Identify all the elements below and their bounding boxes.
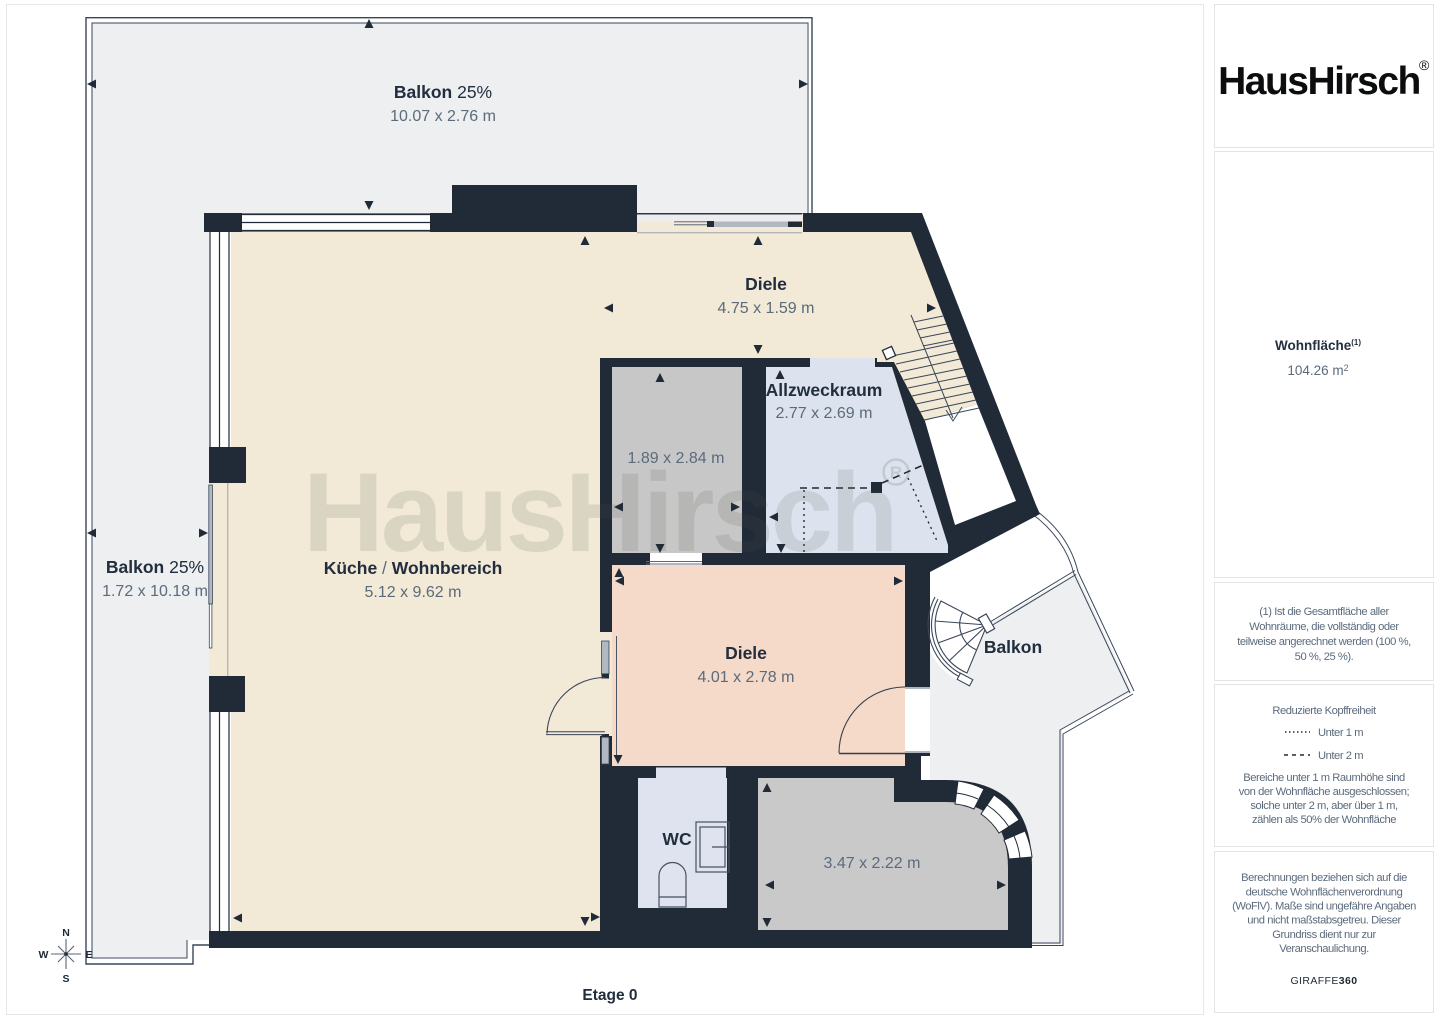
svg-text:WC: WC: [662, 829, 692, 849]
svg-text:E: E: [85, 949, 92, 961]
svg-text:Veranschaulichung.: Veranschaulichung.: [1279, 943, 1369, 955]
svg-text:deutsche Wohnflächenverordnung: deutsche Wohnflächenverordnung: [1246, 887, 1403, 899]
svg-text:von der Wohnfläche ausgeschlos: von der Wohnfläche ausgeschlossen;: [1239, 786, 1410, 798]
svg-text:Unter 1 m: Unter 1 m: [1318, 727, 1363, 739]
svg-text:Balkon 25%: Balkon 25%: [394, 82, 492, 102]
svg-text:Balkon: Balkon: [984, 637, 1042, 657]
svg-text:und nicht maßstabsgetreu. Dies: und nicht maßstabsgetreu. Dieser: [1247, 915, 1401, 927]
svg-text:S: S: [62, 973, 69, 985]
svg-text:Allzweckraum: Allzweckraum: [766, 380, 883, 400]
svg-text:zählen als 50% der Wohnfläche: zählen als 50% der Wohnfläche: [1252, 814, 1396, 826]
svg-text:N: N: [62, 927, 70, 939]
svg-text:R: R: [890, 463, 902, 482]
svg-text:solche unter 2 m, aber über 1: solche unter 2 m, aber über 1 m,: [1250, 800, 1398, 812]
svg-text:1.89 x 2.84 m: 1.89 x 2.84 m: [628, 450, 725, 467]
svg-text:Etage 0: Etage 0: [582, 987, 637, 1004]
svg-text:104.26 m2: 104.26 m2: [1287, 363, 1348, 378]
svg-text:Balkon 25%: Balkon 25%: [106, 557, 204, 577]
svg-text:Reduzierte Kopffreiheit: Reduzierte Kopffreiheit: [1272, 705, 1377, 717]
svg-text:Wohnräume, die vollständig ode: Wohnräume, die vollständig oder: [1249, 621, 1399, 633]
svg-text:Küche / Wohnbereich: Küche / Wohnbereich: [324, 558, 503, 578]
svg-text:2.77 x 2.69 m: 2.77 x 2.69 m: [776, 405, 873, 422]
svg-text:teilweise angerechnet werden (: teilweise angerechnet werden (100 %,: [1237, 636, 1411, 648]
svg-text:W: W: [39, 949, 49, 961]
svg-text:Berechnungen beziehen sich auf: Berechnungen beziehen sich auf die: [1241, 872, 1407, 884]
svg-text:4.01 x 2.78 m: 4.01 x 2.78 m: [698, 669, 795, 686]
svg-text:HausHirsch: HausHirsch: [303, 450, 895, 575]
svg-text:Grundriss dient nur zur: Grundriss dient nur zur: [1272, 929, 1376, 941]
svg-text:Unter 2 m: Unter 2 m: [1318, 750, 1363, 762]
svg-text:Diele: Diele: [725, 643, 767, 663]
svg-text:1.72 x 10.18 m: 1.72 x 10.18 m: [102, 583, 208, 600]
svg-text:®: ®: [1419, 57, 1430, 73]
svg-text:10.07 x 2.76 m: 10.07 x 2.76 m: [390, 108, 496, 125]
svg-text:5.12 x 9.62 m: 5.12 x 9.62 m: [365, 584, 462, 601]
svg-text:Wohnfläche(1): Wohnfläche(1): [1275, 338, 1361, 353]
svg-text:3.47 x 2.22 m: 3.47 x 2.22 m: [824, 855, 921, 872]
svg-text:(1) Ist die Gesamtfläche aller: (1) Ist die Gesamtfläche aller: [1259, 606, 1389, 618]
svg-text:Diele: Diele: [745, 274, 787, 294]
svg-text:Bereiche unter 1 m Raumhöhe si: Bereiche unter 1 m Raumhöhe sind: [1243, 772, 1405, 784]
svg-text:50 %, 25 %).: 50 %, 25 %).: [1295, 651, 1354, 663]
svg-text:GIRAFFE360: GIRAFFE360: [1290, 975, 1357, 987]
svg-text:4.75 x 1.59 m: 4.75 x 1.59 m: [718, 300, 815, 317]
svg-text:(WoFlV). Maße sind ungefähre A: (WoFlV). Maße sind ungefähre Angaben: [1232, 901, 1416, 913]
svg-text:HausHirsch: HausHirsch: [1218, 60, 1420, 103]
